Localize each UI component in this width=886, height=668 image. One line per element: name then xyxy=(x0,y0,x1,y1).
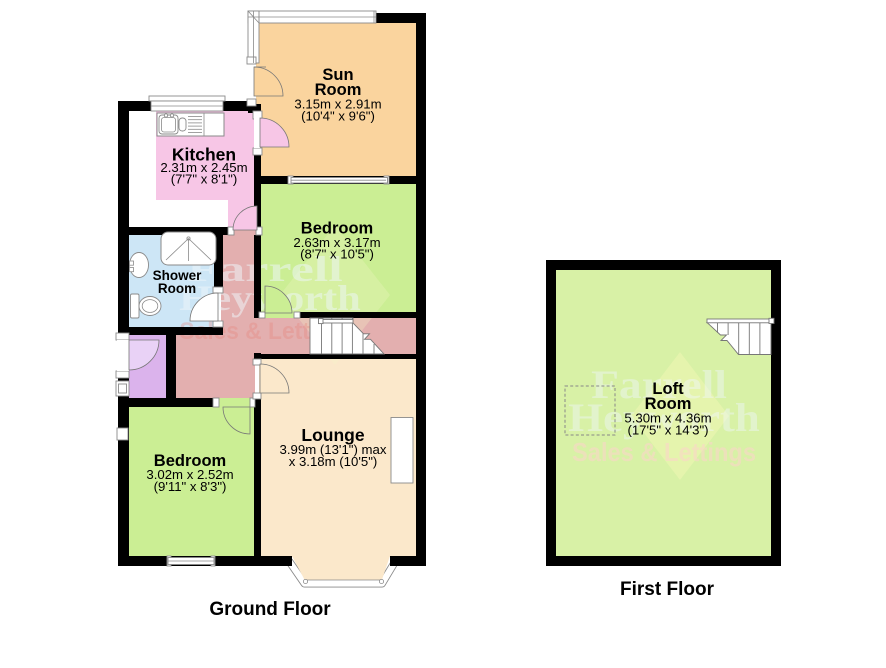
svg-text:(7'7" x 8'1"): (7'7" x 8'1") xyxy=(171,172,237,187)
svg-text:Sales & Lettings: Sales & Lettings xyxy=(572,439,756,467)
svg-text:(9'11" x 8'3"): (9'11" x 8'3") xyxy=(154,479,227,494)
svg-text:(17'5" x 14'3"): (17'5" x 14'3") xyxy=(627,423,708,438)
svg-text:(10'4" x 9'6"): (10'4" x 9'6") xyxy=(301,109,375,124)
svg-text:(8'7" x 10'5"): (8'7" x 10'5") xyxy=(300,247,374,262)
svg-text:x 3.18m (10'5"): x 3.18m (10'5") xyxy=(289,454,378,469)
svg-text:Room: Room xyxy=(158,281,196,296)
svg-text:Ground Floor: Ground Floor xyxy=(209,599,331,620)
svg-text:First Floor: First Floor xyxy=(620,579,715,600)
